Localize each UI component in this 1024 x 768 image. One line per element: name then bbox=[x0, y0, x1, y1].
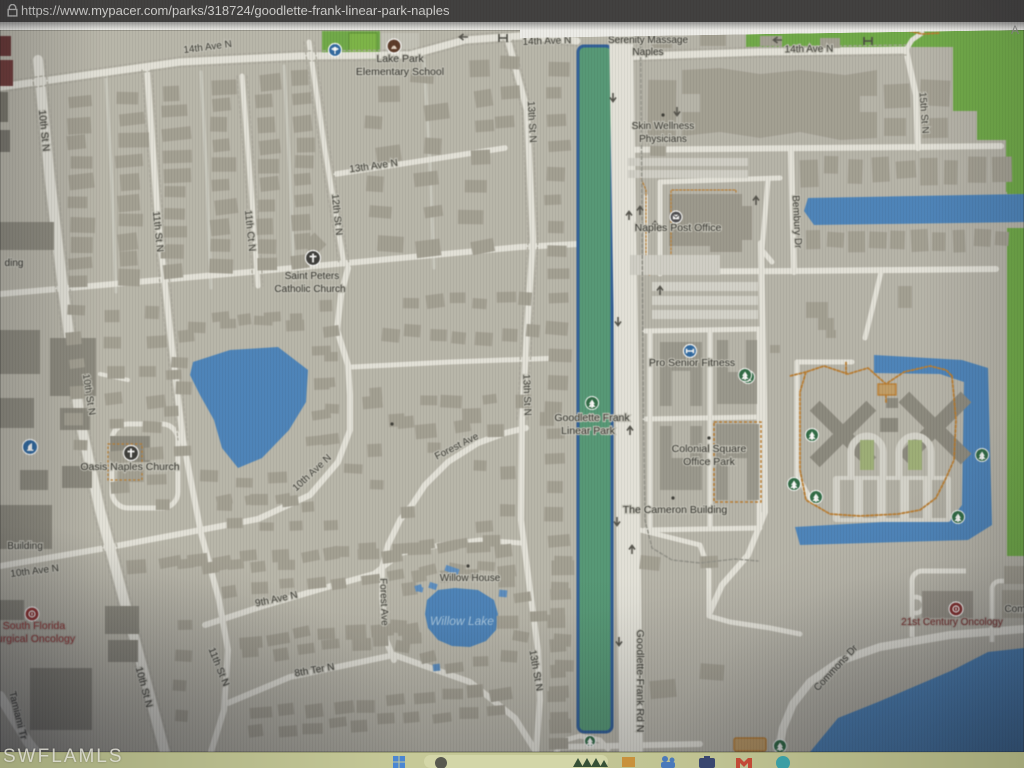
svg-text:Naples: Naples bbox=[632, 47, 663, 58]
svg-text:The Cameron Building: The Cameron Building bbox=[623, 504, 728, 516]
svg-text:Office Park: Office Park bbox=[683, 456, 735, 468]
svg-text:South Florida: South Florida bbox=[3, 620, 66, 632]
svg-text:Naples Post Office: Naples Post Office bbox=[635, 222, 722, 234]
svg-text:Forest Ave: Forest Ave bbox=[377, 578, 390, 626]
svg-text:Willow Lake: Willow Lake bbox=[430, 614, 494, 628]
svg-text:Linear Park: Linear Park bbox=[561, 425, 615, 437]
svg-text:Pro Senior Fitness: Pro Senior Fitness bbox=[649, 357, 735, 369]
svg-text:Saint Peters: Saint Peters bbox=[285, 271, 339, 282]
svg-text:13th St N: 13th St N bbox=[520, 374, 532, 416]
svg-text:14th Ave N: 14th Ave N bbox=[784, 44, 833, 56]
svg-text:Building: Building bbox=[7, 541, 43, 552]
svg-text:Goodlette-Frank Rd N: Goodlette-Frank Rd N bbox=[634, 630, 646, 733]
svg-text:21st Century Oncology: 21st Century Oncology bbox=[901, 617, 1003, 628]
svg-text:13th St N: 13th St N bbox=[525, 101, 538, 143]
svg-text:Goodlette Frank: Goodlette Frank bbox=[554, 412, 630, 424]
svg-text:Colonial Square: Colonial Square bbox=[672, 443, 747, 455]
svg-text:Willow House: Willow House bbox=[440, 573, 501, 584]
svg-text:ding: ding bbox=[5, 258, 24, 269]
svg-text:Oasis Naples Church: Oasis Naples Church bbox=[80, 461, 179, 473]
svg-text:Skin Wellness: Skin Wellness bbox=[632, 121, 695, 132]
svg-text:Physicians: Physicians bbox=[639, 134, 687, 145]
svg-text:Elementary School: Elementary School bbox=[356, 66, 444, 78]
svg-text:urgical Oncology: urgical Oncology bbox=[0, 633, 76, 645]
svg-text:Catholic Church: Catholic Church bbox=[274, 284, 345, 295]
svg-text:Lake Park: Lake Park bbox=[376, 53, 424, 65]
svg-text:Com: Com bbox=[1004, 604, 1024, 615]
